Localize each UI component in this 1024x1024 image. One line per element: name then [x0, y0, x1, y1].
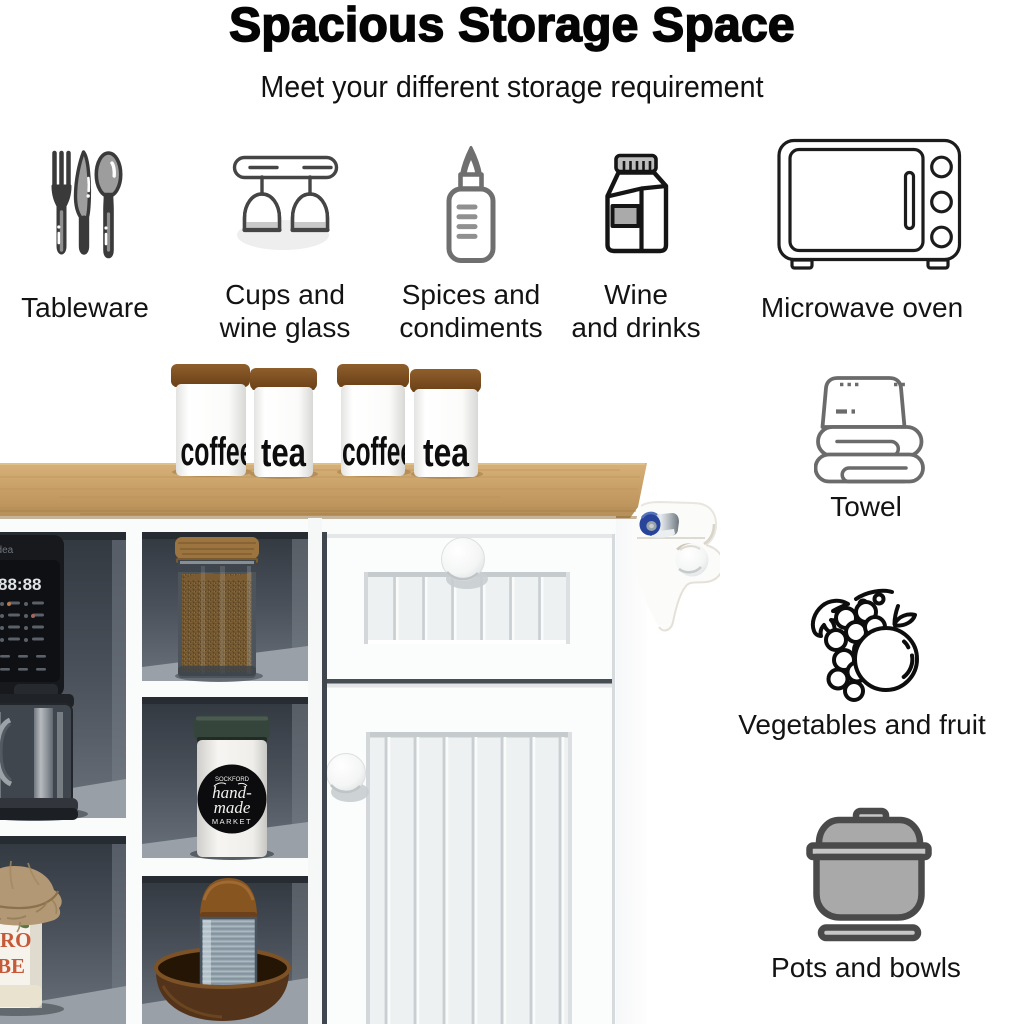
svg-text:RO: RO [0, 928, 32, 952]
svg-text:MARKET: MARKET [212, 817, 252, 826]
svg-text:tea: tea [423, 431, 470, 475]
svg-text:Midea: Midea [0, 545, 14, 556]
svg-text:coffee: coffee [342, 430, 414, 474]
svg-text:BE: BE [0, 954, 25, 978]
svg-text:made: made [214, 798, 251, 817]
svg-text:tea: tea [261, 431, 307, 475]
svg-text:88:88: 88:88 [0, 575, 41, 594]
svg-text:coffee: coffee [181, 430, 254, 474]
